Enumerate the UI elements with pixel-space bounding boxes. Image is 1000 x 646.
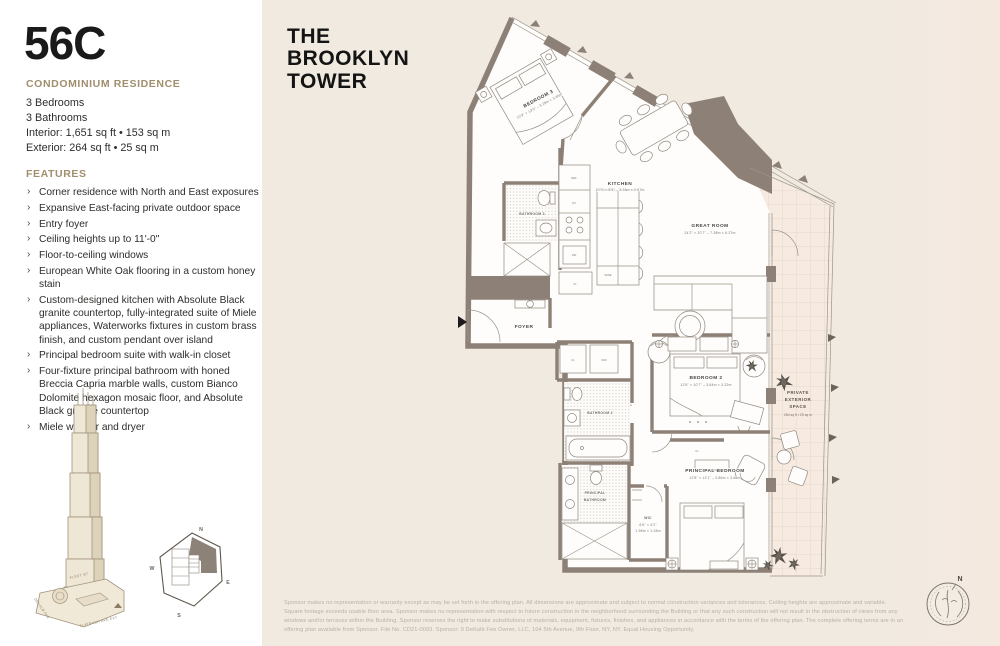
spec-bedrooms: 3 Bedrooms: [26, 96, 256, 111]
great-room-dims: 24'2" × 20'7" – 7.38m × 6.27m: [684, 231, 735, 235]
building-illustration: FLEET ST DEKALB AVE FLATBUSH AVE EXT N W…: [22, 385, 260, 643]
feature-item: Floor-to-ceiling windows: [26, 249, 260, 262]
residence-type-label: CONDOMINIUM RESIDENCE: [26, 78, 180, 90]
spec-interior: Interior: 1,651 sq ft • 153 sq m: [26, 126, 256, 141]
hall-cl-label: CL: [571, 358, 575, 362]
bathroom2: [564, 382, 630, 461]
bedroom2-label: BEDROOM 2: [689, 375, 722, 381]
keyplan-north-label: N: [199, 527, 203, 533]
features-title: FEATURES: [26, 168, 87, 180]
exterior-area: 264 sq ft • 25 sq m: [784, 413, 812, 417]
wic-dims-1: 6'6" × 4'2": [639, 523, 657, 527]
foyer-wall-mass: [468, 276, 550, 298]
ov-label: OV: [572, 201, 576, 205]
floorplan-svg: BEDROOM 3 10'9" × 13'0" – 3.28m × 3.96m …: [432, 8, 892, 594]
kitchen-dims: 10'9" × 8'5" – 3.28m × 2.57m: [595, 188, 644, 192]
foyer-label: FOYER: [515, 324, 534, 330]
feature-item: Corner residence with North and East exp…: [26, 186, 260, 199]
bathroom3-label: BATHROOM 3: [519, 212, 545, 216]
brand-title: THE BROOKLYN TOWER: [287, 26, 409, 93]
feature-item: Expansive East-facing private outdoor sp…: [26, 202, 260, 215]
brand-line-3: TOWER: [287, 71, 409, 93]
exterior-label-2: EXTERIOR: [785, 397, 812, 402]
principal-bathroom: [562, 465, 627, 559]
bathroom2-label: BATHROOM 2: [587, 411, 613, 415]
spec-bathrooms: 3 Bathrooms: [26, 111, 256, 126]
wd-label: W/D: [601, 358, 606, 362]
bathroom3: [504, 185, 558, 276]
spec-exterior: Exterior: 264 sq ft • 25 sq m: [26, 141, 256, 156]
kitchen-label: KITCHEN: [608, 181, 633, 187]
great-room-label: GREAT ROOM: [691, 223, 728, 229]
keyplan-west-label: W: [150, 566, 155, 572]
brand-line-1: THE: [287, 26, 409, 48]
brand-line-2: BROOKLYN: [287, 48, 409, 70]
exterior-label-3: SPACE: [789, 404, 806, 409]
principal-bedroom-dims: 12'8" × 12'1" – 3.86m × 3.68m: [689, 476, 740, 480]
feature-item: Ceiling heights up to 11'-0": [26, 233, 260, 246]
keyplan-hexagon: N W S E: [150, 527, 231, 619]
unit-specs: 3 Bedrooms 3 Bathrooms Interior: 1,651 s…: [26, 96, 256, 156]
exterior-label-1: PRIVATE: [787, 390, 809, 395]
feature-item: Entry foyer: [26, 218, 260, 231]
unit-number: 56C: [24, 16, 105, 70]
wine-label: WINE: [604, 273, 611, 277]
kitchen-cl-label: CL: [573, 282, 577, 286]
principal-cl-label: CL: [695, 449, 699, 453]
disclaimer-text: Sponsor makes no representation or warra…: [284, 599, 906, 635]
keyplan-south-label: S: [177, 613, 181, 619]
wic-label: WIC: [644, 516, 652, 520]
principal-bathroom-label-1: PRINCIPAL: [585, 491, 606, 495]
tower-icon: [64, 388, 106, 601]
foyer-console: [515, 300, 545, 308]
keyplan-east-label: E: [226, 580, 230, 586]
compass-icon: N: [918, 570, 980, 640]
principal-bathroom-label-2: BATHROOM: [584, 498, 606, 502]
feature-item: Custom-designed kitchen with Absolute Bl…: [26, 294, 260, 347]
feature-item: European White Oak flooring in a custom …: [26, 265, 260, 292]
bedroom2-dims: 12'6" × 10'7" – 3.84m × 3.22m: [680, 383, 731, 387]
wic-dims-2: 1.98m × 1.28m: [635, 529, 660, 533]
compass-north-label: N: [957, 576, 962, 583]
principal-bedroom-label: PRINCIPAL BEDROOM: [685, 468, 744, 474]
ref-label: REF: [571, 176, 577, 180]
dw-label: DW: [572, 253, 577, 257]
feature-item: Principal bedroom suite with walk-in clo…: [26, 349, 260, 362]
